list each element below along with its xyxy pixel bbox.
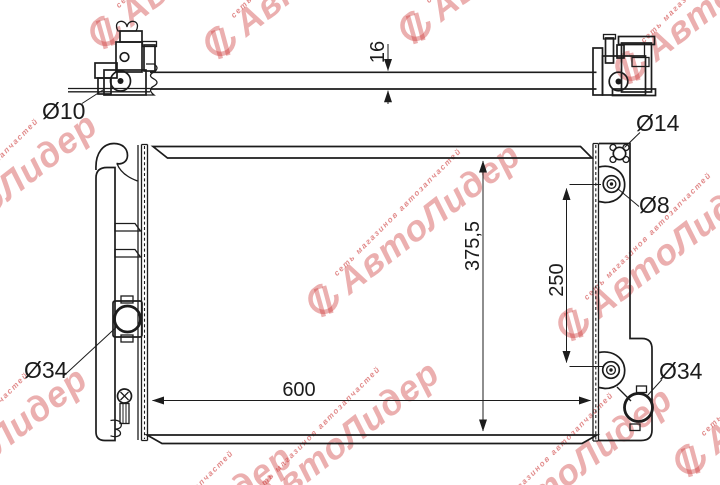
dimension-250: 250 [546,185,604,367]
dim-label-16: 16 [367,41,389,63]
dim-label-250: 250 [546,263,568,296]
side-view: 16 Ø10 [42,21,656,124]
dim-label-dia34-right: Ø34 [659,358,703,384]
bracket-tab [115,224,141,232]
side-left-fitting [95,21,157,95]
outlet-pipe-dia34 [625,386,653,431]
top-header-strip [153,147,592,159]
mount-hole-dia14 [610,145,629,163]
dimension-375-5: 375,5 [462,161,484,431]
dimension-600: 600 [153,379,591,401]
pin-dia8-upper [599,166,625,202]
leader-dia34-left [63,328,116,377]
leader-dia8 [618,189,640,207]
right-tank [599,144,653,441]
bracket-tab [115,250,141,258]
dim-label-dia34-left: Ø34 [24,357,68,383]
front-view: 375,5 250 600 Ø14 Ø8 Ø34 Ø34 [24,110,703,444]
dim-label-dia14: Ø14 [636,110,680,136]
dim-label-dia8: Ø8 [639,192,670,218]
top-hook-bracket [96,144,128,171]
dim-label-dia10: Ø10 [42,98,85,124]
radiator-drawing-canvas: сеть магазинов автозапчастей АвтоЛидер с… [0,0,720,485]
side-core-bar [150,72,597,89]
left-core-seam [142,145,148,441]
radiator-line-drawing: 16 Ø10 [0,0,720,485]
side-mounting-plate [68,89,150,92]
pin-lower [599,352,625,389]
dim-label-600: 600 [282,379,315,401]
bottom-header-strip [147,435,597,444]
side-right-fitting [593,35,656,96]
right-core-seam [593,144,599,442]
drain-plug [118,389,132,424]
left-tank [96,144,142,441]
dim-label-375-5: 375,5 [462,221,484,271]
